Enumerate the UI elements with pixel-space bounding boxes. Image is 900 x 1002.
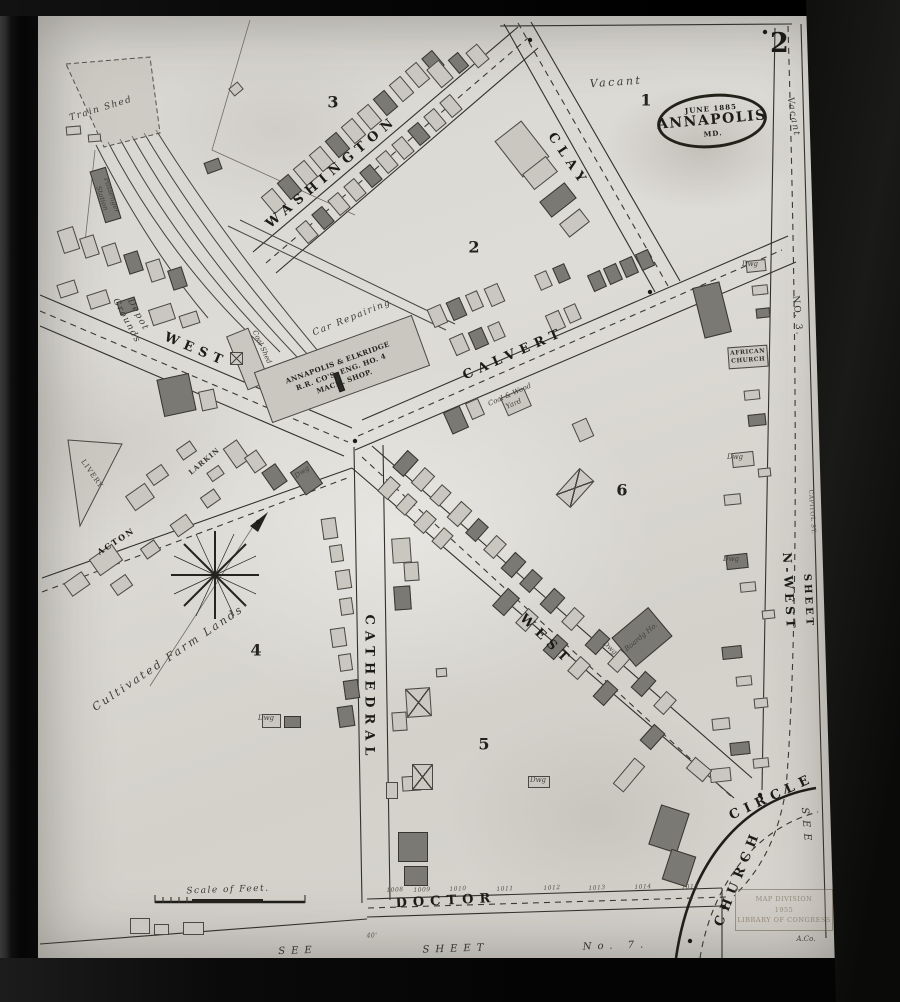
house-number: 1014 xyxy=(634,883,652,891)
building xyxy=(386,782,398,799)
building xyxy=(404,866,428,886)
house-number: 1010 xyxy=(449,885,467,893)
building xyxy=(183,922,204,935)
building xyxy=(391,711,407,731)
stamp-line-1: Map Division xyxy=(756,894,813,904)
building xyxy=(154,924,169,935)
film-border-bottom xyxy=(0,958,900,1002)
map-label: A.Co. xyxy=(797,935,816,943)
block-number: 1 xyxy=(640,91,651,110)
building xyxy=(343,679,360,700)
building xyxy=(736,675,753,687)
building xyxy=(405,687,432,718)
building xyxy=(729,741,750,756)
map-state: MD. xyxy=(703,128,723,139)
map-label: No. 7. xyxy=(583,939,650,952)
map-stage: WASHINGTONCLAYCALVERTWESTWESTCATHEDRALDO… xyxy=(0,0,900,1002)
building xyxy=(709,767,731,783)
building xyxy=(339,597,354,616)
building xyxy=(393,585,412,610)
building xyxy=(403,561,419,581)
building xyxy=(711,717,730,731)
stamp-line-2: 1955 xyxy=(775,905,794,915)
block-number: 2 xyxy=(468,238,479,257)
block-number: 5 xyxy=(478,735,489,754)
building xyxy=(335,569,352,590)
house-number: 1011 xyxy=(496,885,514,893)
map-label: SHEET xyxy=(422,942,489,955)
building xyxy=(284,716,301,728)
map-label: Dwg xyxy=(258,714,274,722)
building xyxy=(330,627,347,648)
building xyxy=(740,581,757,593)
building xyxy=(391,537,412,563)
map-label: Dwg xyxy=(727,453,743,461)
building xyxy=(338,653,353,672)
map-label: Dwg xyxy=(723,555,739,563)
building xyxy=(436,668,448,678)
map-label: SEE xyxy=(278,945,318,957)
map-label: Dwg xyxy=(742,260,758,268)
building xyxy=(721,645,742,660)
house-number: 1015 xyxy=(681,883,699,891)
block-number: 4 xyxy=(250,641,261,660)
building xyxy=(66,125,82,135)
building xyxy=(88,133,102,142)
map-label: 40' xyxy=(367,933,378,940)
building xyxy=(747,413,766,427)
film-border-top xyxy=(0,0,900,16)
building xyxy=(412,764,433,790)
building xyxy=(329,544,344,563)
library-stamp: Map Division 1955 Library of Congress xyxy=(735,889,833,931)
building xyxy=(337,705,356,728)
house-number: 1012 xyxy=(543,884,561,892)
sheet-number: 2 xyxy=(770,28,789,59)
building xyxy=(756,307,771,318)
house-number: 1013 xyxy=(588,884,606,892)
map-label: Dwg xyxy=(530,776,546,784)
house-number: 1009 xyxy=(413,886,431,894)
building xyxy=(754,697,769,708)
building xyxy=(321,517,339,540)
building xyxy=(723,493,741,506)
street-label: CATHEDRAL xyxy=(362,615,377,762)
building xyxy=(744,389,761,401)
building xyxy=(130,918,150,934)
map-label: AFRICAN CHURCH xyxy=(730,347,766,366)
building xyxy=(758,467,772,477)
stamp-line-3: Library of Congress xyxy=(737,915,830,925)
building xyxy=(230,352,243,365)
building xyxy=(762,609,776,619)
block-number: 3 xyxy=(327,93,338,112)
building xyxy=(753,757,770,769)
film-border-left xyxy=(0,0,38,1002)
building xyxy=(398,832,428,862)
house-number: 1008 xyxy=(386,886,404,894)
block-number: 6 xyxy=(616,481,627,500)
building xyxy=(752,284,769,296)
